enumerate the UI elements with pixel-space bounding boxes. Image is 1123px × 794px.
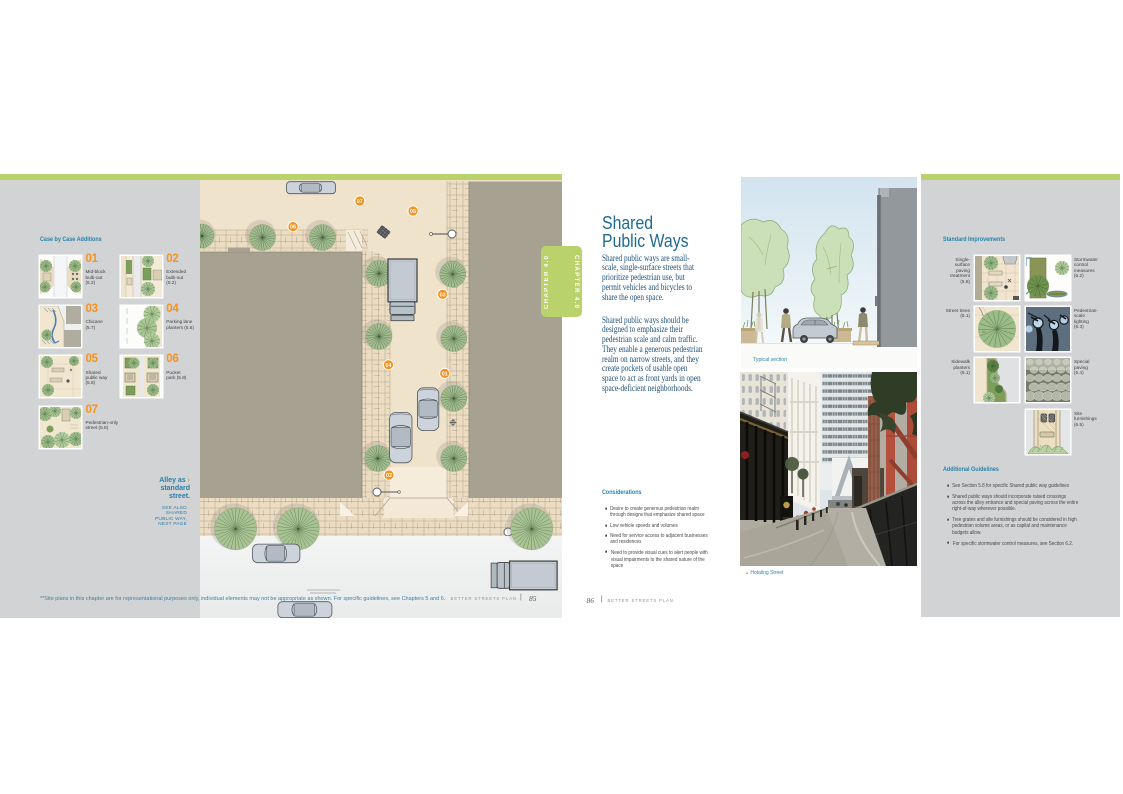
svg-text:02: 02: [386, 473, 392, 479]
svg-text:03: 03: [440, 292, 446, 298]
svg-text:01: 01: [442, 371, 448, 377]
svg-text:Typical section: Typical section: [753, 357, 787, 363]
svg-text:06: 06: [290, 225, 296, 231]
svg-text:05: 05: [410, 209, 416, 215]
svg-text:04: 04: [386, 363, 392, 369]
svg-text:07: 07: [357, 199, 363, 205]
svg-text:Ox: Ox: [982, 330, 986, 334]
